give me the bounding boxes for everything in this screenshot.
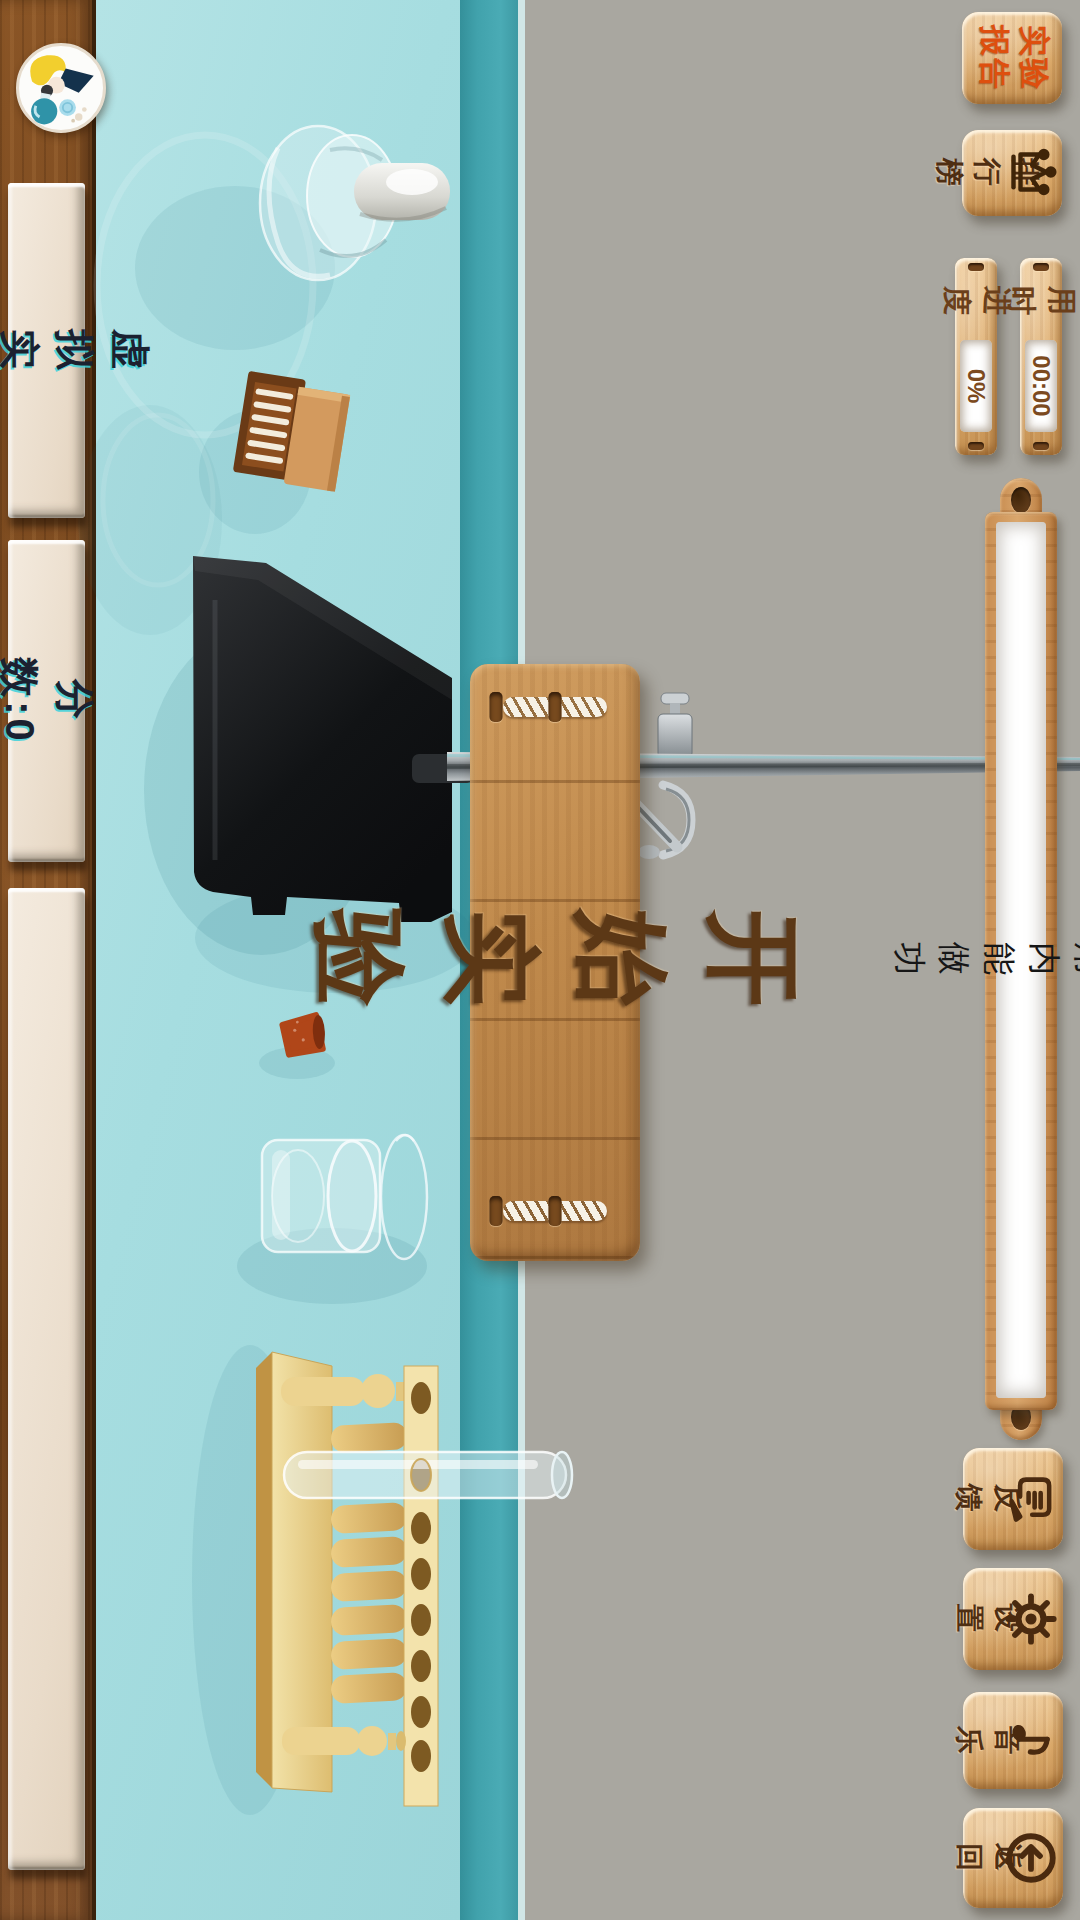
- matchbox[interactable]: [232, 371, 351, 492]
- music-note-icon: [1002, 1712, 1060, 1770]
- progress-display: 进度 0%: [955, 258, 997, 455]
- experiment-title: 利用内能做功: [886, 935, 1080, 985]
- beaker-rim: [381, 1135, 427, 1259]
- time-value: 00:00: [1027, 355, 1055, 416]
- sidebar-tab-virtual-lab[interactable]: 虚拟实验: [8, 183, 85, 518]
- scientist-avatar-illustration: [19, 46, 103, 130]
- leaderboard-button[interactable]: 排行榜: [962, 130, 1062, 216]
- progress-value-window: 0%: [960, 340, 992, 432]
- settings-button[interactable]: 设置: [963, 1568, 1063, 1670]
- speech-bubble-pencil-icon: [1002, 1470, 1060, 1528]
- start-experiment-label: 开始实验: [293, 878, 817, 1048]
- sidebar-empty-panel: [8, 888, 85, 1870]
- banner-window: 利用内能做功: [996, 522, 1046, 1398]
- test-tube-rack[interactable]: [256, 1352, 438, 1806]
- strip-slot: [968, 442, 984, 450]
- experiment-report-button[interactable]: 实验 报告: [962, 12, 1062, 104]
- time-label: 用时: [1001, 280, 1080, 322]
- feedback-button[interactable]: 反馈: [963, 1448, 1063, 1550]
- back-arrow-circle-icon: [1002, 1829, 1060, 1887]
- back-button[interactable]: 返回: [963, 1808, 1063, 1908]
- clamp-knob: [661, 693, 689, 704]
- experiment-title-banner: 利用内能做功: [985, 478, 1057, 1440]
- clamp-body: [658, 714, 692, 758]
- start-experiment-sign[interactable]: 开始实验: [470, 664, 640, 1261]
- app-screen: 虚拟实验 分数:0 开始实验 实验 报告 排行榜: [0, 0, 1080, 1920]
- progress-value: 0%: [962, 369, 990, 404]
- score-label: 分数:0: [0, 657, 102, 745]
- banner-hole: [1011, 487, 1031, 513]
- time-value-window: 00:00: [1025, 340, 1057, 432]
- strip-slot: [1033, 442, 1049, 450]
- sidebar-score-panel: 分数:0: [8, 540, 85, 862]
- music-button[interactable]: 音乐: [963, 1692, 1063, 1789]
- time-display: 用时 00:00: [1020, 258, 1062, 455]
- avatar[interactable]: [16, 43, 106, 133]
- beaker[interactable]: [262, 1135, 427, 1259]
- crown-icon: [1001, 144, 1059, 202]
- dropper-bottle[interactable]: [260, 126, 450, 280]
- experiment-report-label: 实验 报告: [974, 25, 1055, 91]
- virtual-lab-label: 虚拟实验: [0, 312, 157, 389]
- sign-rope-bottom: [499, 1196, 611, 1226]
- test-tube[interactable]: [284, 1452, 572, 1498]
- gear-icon: [1002, 1590, 1060, 1648]
